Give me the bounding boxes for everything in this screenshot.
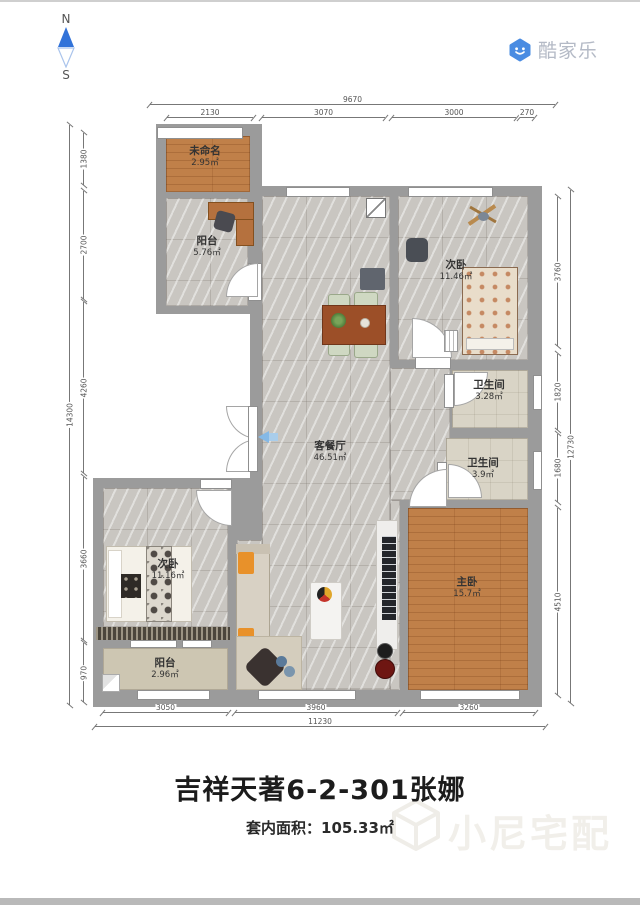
bed-topright-footbench <box>466 338 514 350</box>
stool <box>360 268 385 290</box>
dim-label: 3070 <box>313 109 334 117</box>
dim-left-seg-2: 2700 <box>83 191 84 299</box>
decor-vase <box>478 212 489 221</box>
kujiale-logo-text: 酷家乐 <box>538 36 598 63</box>
compass-north-label: N <box>48 12 84 26</box>
dim-right-seg-4: 4510 <box>557 508 558 695</box>
dim-left-seg-1: 1380 <box>83 133 84 185</box>
dim-label: 14300 <box>66 402 74 428</box>
dim-label: 3000 <box>443 109 464 117</box>
dim-label: 3760 <box>554 261 562 282</box>
floorplan-canvas: N S 酷家乐 <box>0 0 640 905</box>
dim-right-total: 12730 <box>570 190 571 703</box>
dim-label: 2700 <box>80 234 88 255</box>
dim-label: 270 <box>519 109 535 117</box>
compass-needle-icon <box>53 26 79 68</box>
window-balcony-bottom <box>137 690 210 700</box>
window-living-top <box>286 187 350 197</box>
kujiale-logo-icon <box>508 38 532 62</box>
window-living-bottom <box>258 690 356 700</box>
dim-top-seg-3: 3000 <box>392 117 516 118</box>
bottom-edge-bar <box>0 898 640 905</box>
table-plant <box>331 313 346 328</box>
door-gap-bathroom-1 <box>444 374 454 408</box>
dim-top-seg-1: 2130 <box>167 117 253 118</box>
dim-label: 2130 <box>199 109 220 117</box>
dim-label: 9670 <box>342 96 363 104</box>
dim-top-seg-4: 270 <box>520 117 534 118</box>
dim-label: 3050 <box>155 704 176 712</box>
desk-return <box>236 219 254 246</box>
brand-logo: 酷家乐 <box>508 36 598 63</box>
compass: N S <box>48 12 84 86</box>
table-plate <box>360 318 370 328</box>
dim-label: 4510 <box>554 591 562 612</box>
dim-left-seg-5: 970 <box>83 643 84 702</box>
floor-balcony-bottom <box>103 648 228 690</box>
floor-master-bedroom <box>408 508 528 690</box>
dim-top-seg-2: 3070 <box>262 117 385 118</box>
dim-bottom-seg-1: 3050 <box>103 712 228 713</box>
plan-area-line: 套内面积：105.33㎡ <box>0 817 640 838</box>
dim-label: 970 <box>80 664 88 680</box>
floor-item-blue-1 <box>276 656 287 667</box>
top-edge-line <box>0 0 640 2</box>
nightstand-patterned <box>121 574 141 598</box>
kitchen-appliance-column <box>382 536 396 620</box>
entry-arrow-tail <box>269 433 278 441</box>
door-gap-bedroom-topright <box>415 357 451 369</box>
bedroom-topright-chair <box>406 238 428 262</box>
balcony-corner-item <box>102 674 120 692</box>
dim-bottom-total: 11230 <box>95 726 545 727</box>
dim-right-seg-3: 1680 <box>557 434 558 502</box>
dim-right-seg-1: 3760 <box>557 197 558 346</box>
dim-left-seg-3: 4260 <box>83 302 84 473</box>
dim-label: 3660 <box>80 548 88 569</box>
window-bathroom-2 <box>533 451 542 490</box>
dim-bottom-seg-3: 3260 <box>403 712 535 713</box>
bed-runner <box>146 546 172 622</box>
sofa-pillow-1 <box>238 552 254 574</box>
radiator <box>444 330 458 352</box>
dim-label: 3260 <box>458 704 479 712</box>
entry-arrow-icon <box>258 431 269 443</box>
dim-left-total: 14300 <box>69 125 70 705</box>
window-sill-plants <box>96 627 230 640</box>
dim-label: 1680 <box>554 457 562 478</box>
dim-right-seg-2: 1820 <box>557 354 558 430</box>
floor-unnamed-room <box>166 136 250 192</box>
fruit-plate <box>317 587 332 602</box>
window-bedroom-topright <box>408 187 493 197</box>
window-bedroom-balcony-b <box>182 640 212 648</box>
dim-label: 1380 <box>80 148 88 169</box>
window-unnamed-top <box>157 127 243 139</box>
appliance-black-circle <box>377 643 393 659</box>
dim-label: 4260 <box>80 377 88 398</box>
window-master-bottom <box>420 690 520 700</box>
door-gap-bedroom-bottomleft <box>200 479 232 489</box>
window-bedroom-balcony-a <box>130 640 177 648</box>
dim-label: 3960 <box>305 704 326 712</box>
dim-left-seg-4: 3660 <box>83 477 84 640</box>
appliance-red-circle <box>375 659 395 679</box>
entry-door-leaf <box>248 406 258 472</box>
floor-item-blue-2 <box>284 666 295 677</box>
dim-bottom-seg-2: 3960 <box>235 712 397 713</box>
window-bathroom-1 <box>533 375 542 410</box>
compass-south-label: S <box>48 68 84 82</box>
dim-label: 11230 <box>307 718 333 726</box>
bed-bottomleft-pillows <box>108 550 122 618</box>
ac-unit-icon <box>366 198 386 218</box>
dim-top-total: 9670 <box>150 104 555 105</box>
dim-label: 1820 <box>554 381 562 402</box>
dim-label: 12730 <box>567 434 575 460</box>
plan-title: 吉祥天著6-2-301张娜 <box>0 768 640 807</box>
